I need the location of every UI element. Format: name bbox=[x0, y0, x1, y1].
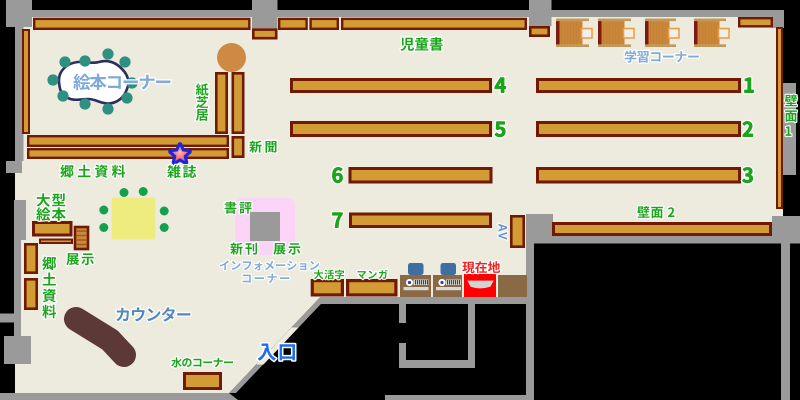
svg-text:AV: AV bbox=[495, 224, 507, 241]
